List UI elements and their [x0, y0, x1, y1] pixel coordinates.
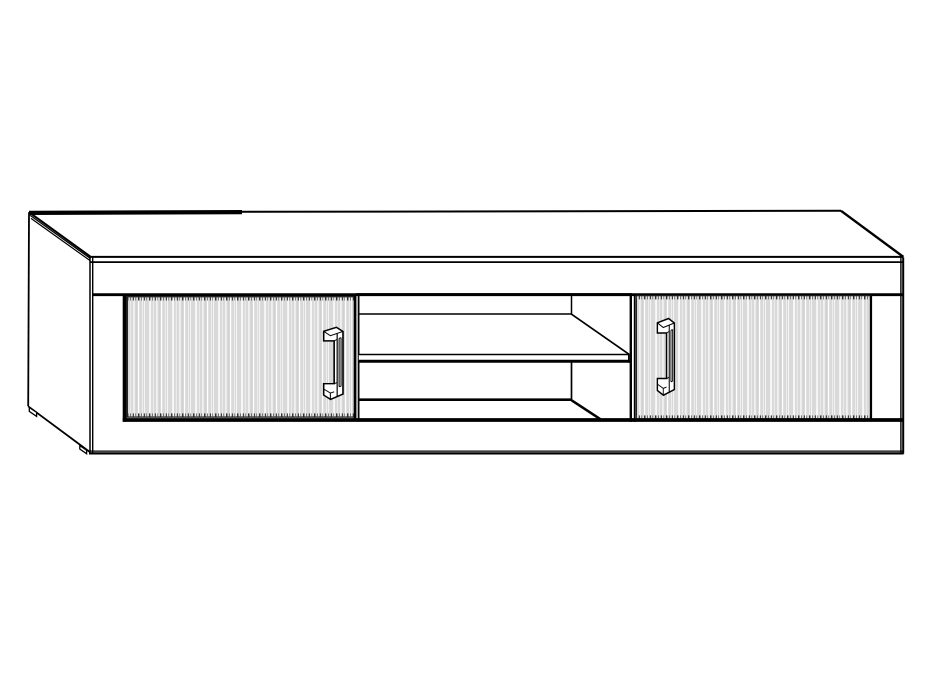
shelf — [359, 354, 631, 363]
page — [0, 0, 928, 696]
tv-stand-line-drawing — [0, 0, 928, 696]
left-door — [125, 295, 356, 422]
top-panel — [29, 211, 903, 262]
right-door — [636, 295, 871, 420]
